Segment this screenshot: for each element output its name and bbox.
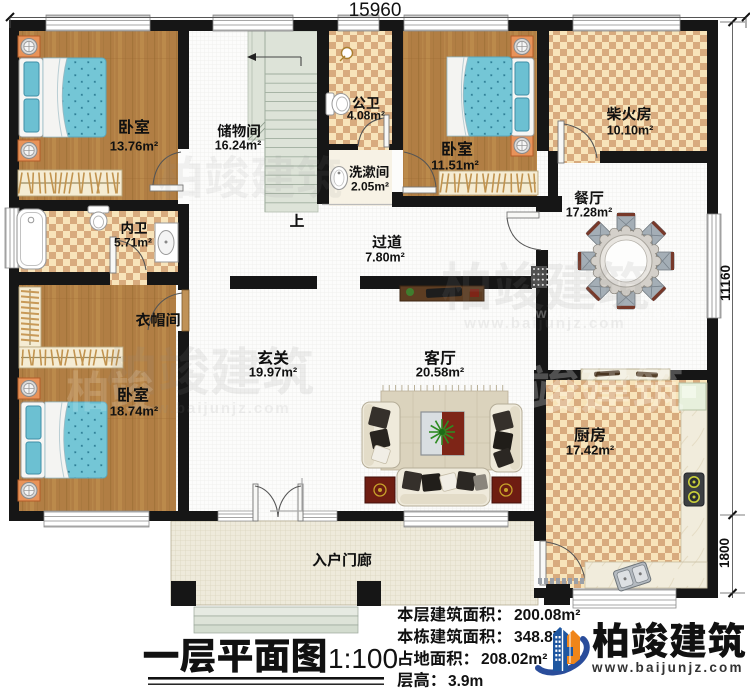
svg-text:17.28m²: 17.28m²	[566, 206, 613, 220]
svg-text:5.71m²: 5.71m²	[114, 235, 152, 249]
svg-text:200.08m²: 200.08m²	[514, 607, 580, 624]
svg-text:18.74m²: 18.74m²	[110, 404, 159, 419]
svg-text:1:100: 1:100	[328, 643, 398, 674]
svg-text:20.58m²: 20.58m²	[416, 365, 465, 380]
svg-text:www.baijunjz.com: www.baijunjz.com	[535, 305, 689, 321]
svg-text:13.76m²: 13.76m²	[110, 139, 159, 154]
svg-text:10.10m²: 10.10m²	[607, 124, 654, 138]
svg-text:1800: 1800	[717, 538, 732, 568]
svg-text:11160: 11160	[718, 265, 733, 301]
svg-text:17.42m²: 17.42m²	[566, 443, 615, 458]
svg-text:15960: 15960	[349, 0, 402, 21]
svg-text:4.08m²: 4.08m²	[347, 108, 385, 122]
svg-text:7.80m²: 7.80m²	[365, 251, 405, 265]
svg-text:3.9m: 3.9m	[448, 673, 483, 690]
svg-text:16.24m²: 16.24m²	[215, 139, 262, 153]
svg-text:19.97m²: 19.97m²	[249, 365, 298, 380]
svg-text:11.51m²: 11.51m²	[431, 158, 479, 173]
svg-text:2.05m²: 2.05m²	[351, 179, 389, 193]
svg-text:www.baijunjz.com: www.baijunjz.com	[591, 660, 744, 675]
